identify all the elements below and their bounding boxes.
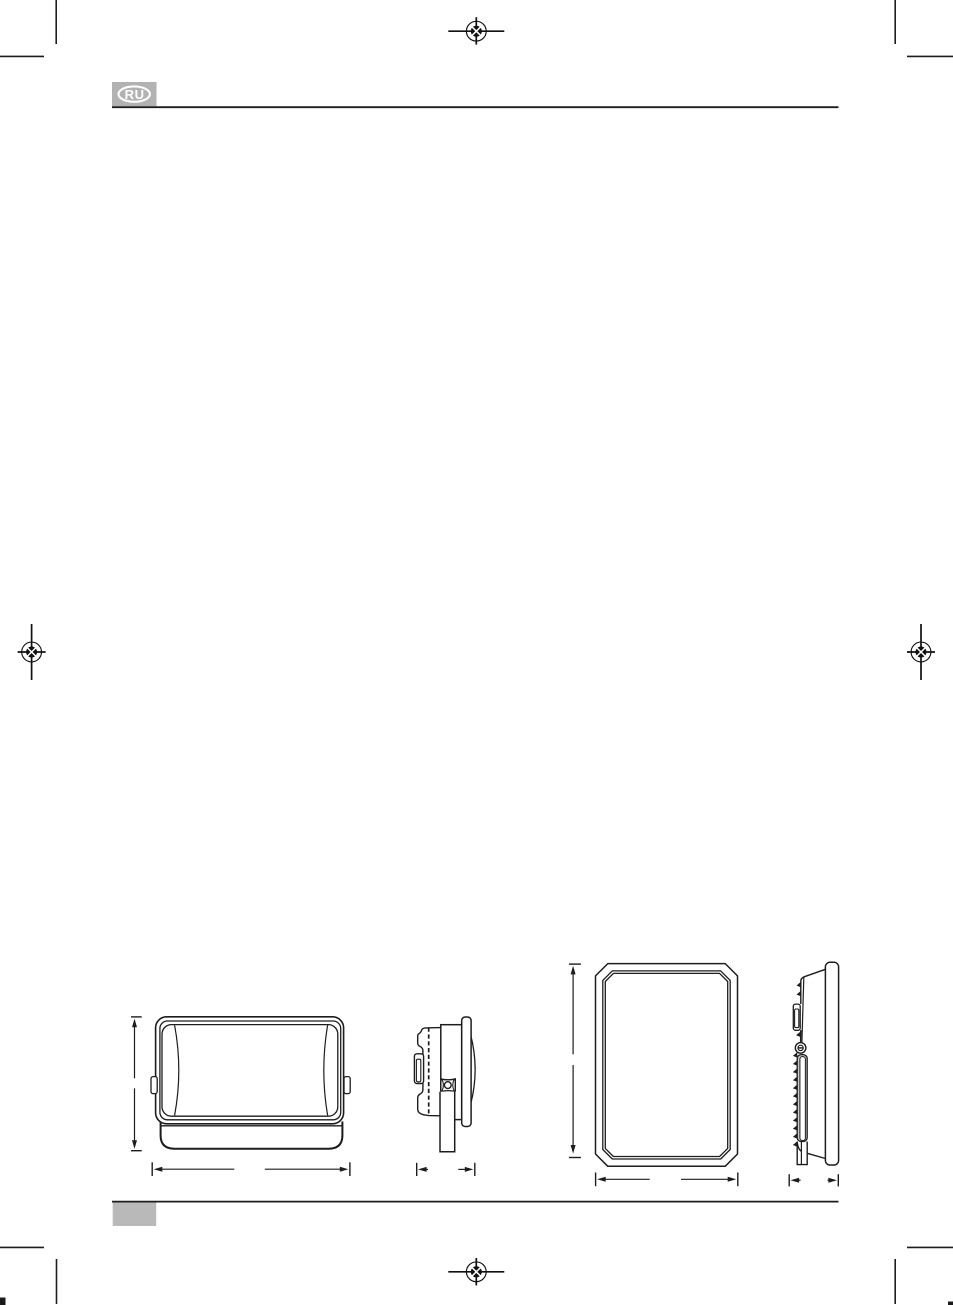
svg-text:RU: RU — [125, 87, 145, 102]
